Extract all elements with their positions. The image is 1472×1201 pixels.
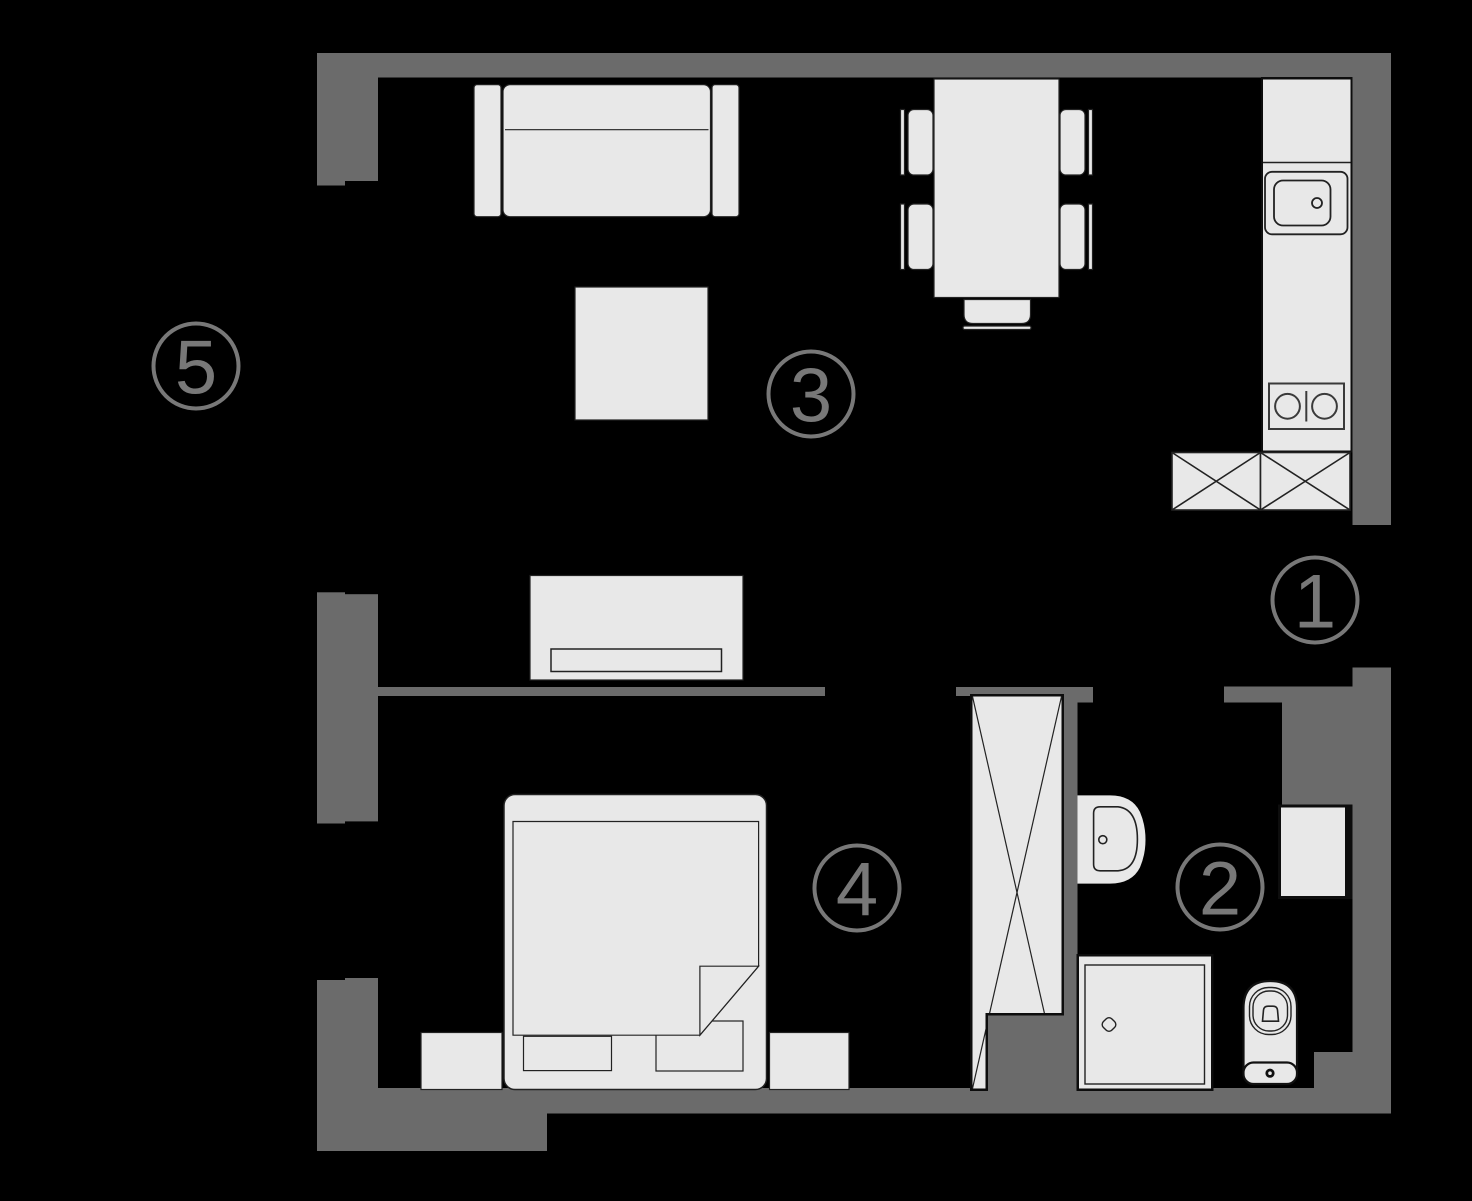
svg-text:1: 1	[1294, 560, 1336, 645]
svg-text:3: 3	[790, 354, 832, 439]
svg-text:5: 5	[175, 326, 217, 411]
svg-text:2: 2	[1199, 847, 1241, 932]
svg-text:4: 4	[836, 848, 878, 933]
